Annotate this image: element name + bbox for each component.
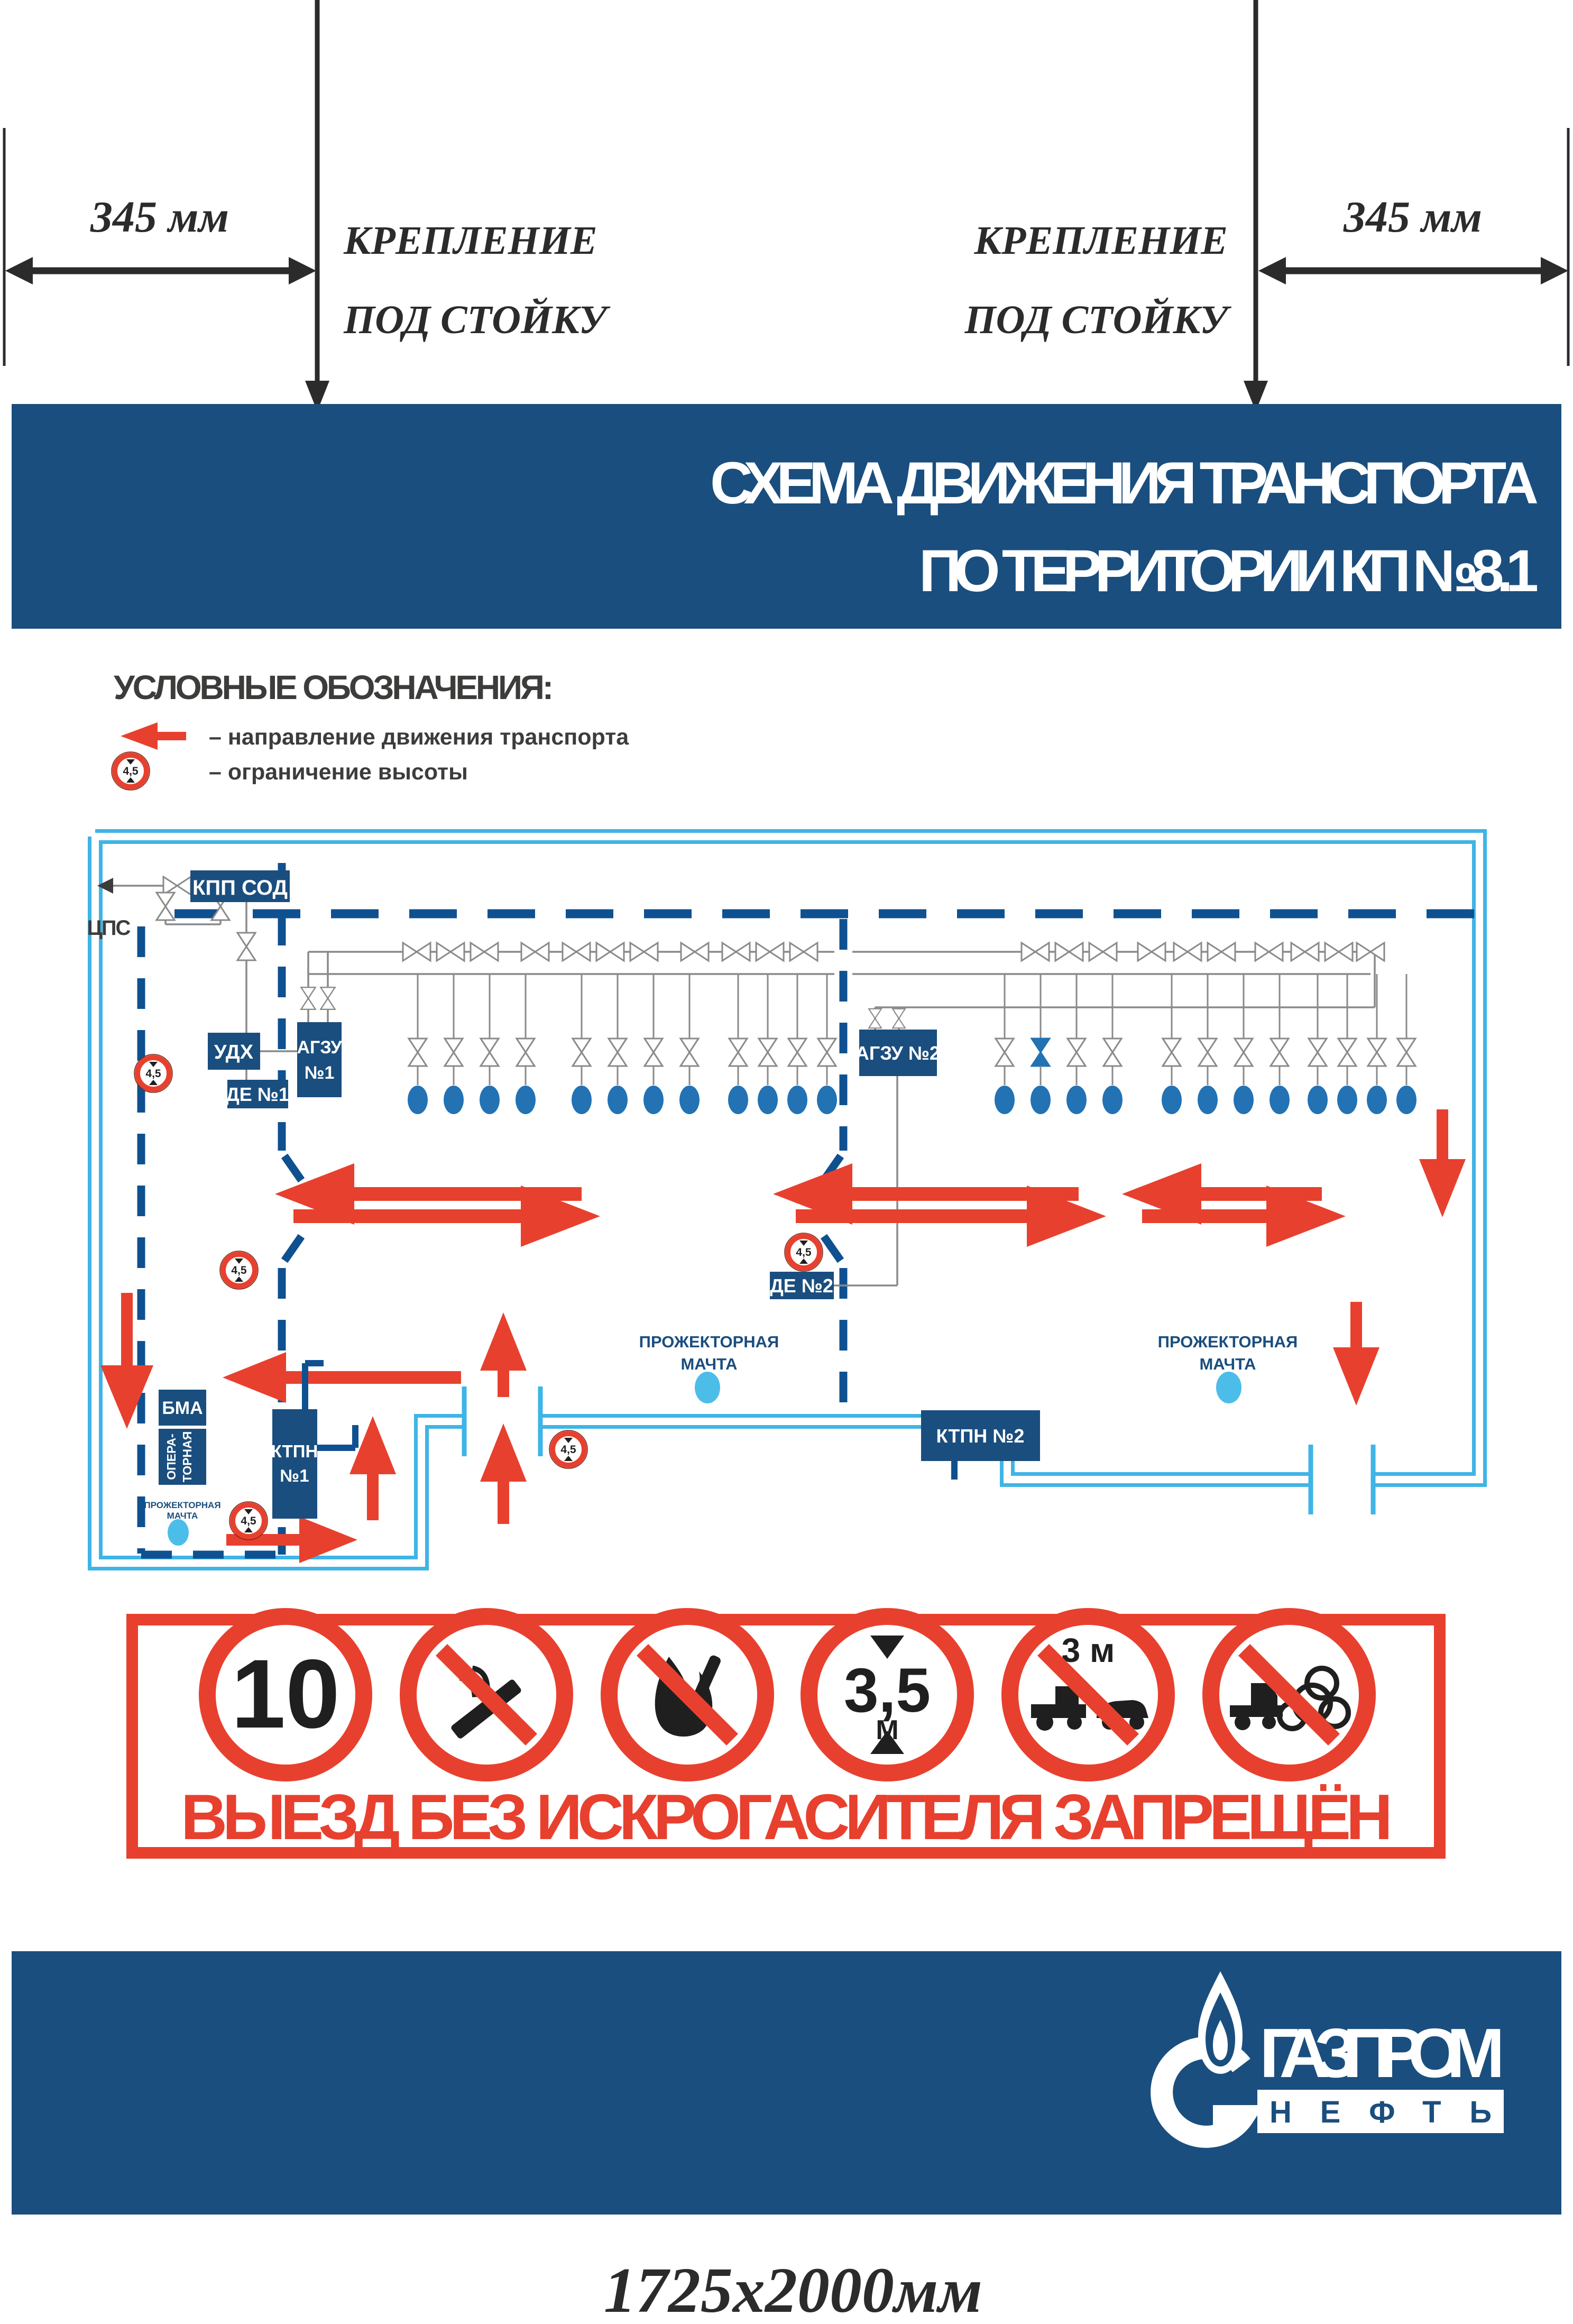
legend-title: УСЛОВНЫЕ ОБОЗНАЧЕНИЯ: [114, 668, 553, 706]
right-dimension-value: 345 мм [1343, 192, 1482, 242]
ktpn2-label: КТПН №2 [936, 1425, 1025, 1447]
mast-label-line2: МАЧТА [167, 1511, 198, 1521]
wellhead-icon [758, 974, 778, 1114]
height-limit-sign-icon [112, 752, 150, 790]
speed-limit-value: 10 [231, 1640, 340, 1749]
operator-room-label-line1: ОПЕРА- [164, 1434, 178, 1480]
height-limit-sign-icon [220, 1251, 258, 1289]
poster-canvas: 4,5 м 345 мм 345 мм КРЕПЛЕНИЕ ПОД СТОЙКУ [0, 0, 1573, 2324]
valve-icon [471, 943, 498, 961]
wellhead-icon [1234, 974, 1254, 1114]
wellhead-icon [1367, 974, 1387, 1114]
no-idling-sign-icon [1211, 1616, 1367, 1773]
valve-icon [756, 943, 784, 961]
road-gate-diagonal [284, 1156, 301, 1180]
speed-limit-sign-icon: 10 [207, 1616, 364, 1773]
valve-icon [1325, 943, 1353, 961]
valve-icon [790, 943, 817, 961]
mast-label-line1: ПРОЖЕКТОРНАЯ [1158, 1333, 1298, 1351]
board-size-note: 1725x2000мм [604, 2255, 982, 2324]
valve-icon [521, 943, 549, 961]
tow-distance-value: 3 м [1062, 1631, 1115, 1669]
mounting-annotation: 345 мм 345 мм КРЕПЛЕНИЕ ПОД СТОЙКУ КРЕПЛ… [4, 0, 1568, 411]
valve-icon [1208, 943, 1235, 961]
mount-label-line1: КРЕПЛЕНИЕ [973, 218, 1228, 263]
de1-label: ДЕ №1 [226, 1083, 289, 1105]
wellhead-icon [1396, 974, 1416, 1114]
valve-icon [1255, 943, 1283, 961]
wellhead-icon [1162, 974, 1182, 1114]
wellhead-icon [572, 974, 592, 1114]
height-limit-sign-icon [229, 1502, 268, 1540]
wellhead-icon [408, 974, 428, 1114]
ktpn1-box [272, 1409, 317, 1519]
mast-label-line1: ПРОЖЕКТОРНАЯ [144, 1500, 220, 1510]
wellhead-icon [1308, 974, 1328, 1114]
legend: УСЛОВНЫЕ ОБОЗНАЧЕНИЯ: – направление движ… [112, 668, 629, 790]
mount-label-line2: ПОД СТОЙКУ [343, 297, 611, 342]
wellhead-icon [480, 974, 500, 1114]
traffic-arrow-down-icon [1419, 1109, 1466, 1217]
valve-icon [1138, 943, 1165, 961]
page-title-line1: СХЕМА ДВИЖЕНИЯ ТРАНСПОРТА [710, 450, 1538, 516]
mount-label-line2: ПОД СТОЙКУ [964, 297, 1231, 342]
height-35-unit: М [876, 1715, 898, 1746]
brand-footer: ГАЗПРОМ НЕФТЬ [12, 1951, 1561, 2215]
site-scheme: ЦПС [87, 837, 1496, 1563]
left-dimension-arrow-icon [5, 257, 316, 284]
bma-label: БМА [162, 1398, 203, 1418]
prohibition-panel: 10 3,5 М [132, 1616, 1440, 1853]
wellhead-icon [444, 974, 464, 1114]
legend-height-label: – ограничение высоты [209, 759, 468, 785]
road-gate-diagonal [824, 1236, 841, 1261]
valve-icon [237, 933, 255, 960]
agzu-risers [301, 987, 905, 1028]
valve-icon [681, 943, 709, 961]
valve-icon [1357, 943, 1384, 961]
wellhead-icon [608, 974, 628, 1114]
ktpn1-label-line1: КТПН [271, 1441, 318, 1461]
height-limit-35-sign-icon: 3,5 М [809, 1616, 965, 1773]
valve-icon [596, 943, 624, 961]
mast-icon [695, 1372, 720, 1403]
wellhead-icon [728, 974, 748, 1114]
mast-label-line2: МАЧТА [1199, 1355, 1256, 1373]
valve-icon [437, 943, 464, 961]
wellhead-icon [679, 974, 700, 1114]
valve-icon [893, 1009, 905, 1028]
wellhead-icon [1337, 974, 1357, 1114]
kpp-sod-label: КПП СОД [192, 876, 288, 899]
valve-icon [157, 893, 174, 920]
right-mount-label: КРЕПЛЕНИЕ ПОД СТОЙКУ [964, 218, 1231, 342]
wellhead-icon [787, 974, 807, 1114]
traffic-arrow-up-icon [480, 1423, 527, 1524]
direction-arrow-icon [121, 722, 186, 750]
valve-icon [563, 943, 590, 961]
height-limit-sign-icon [134, 1054, 172, 1092]
page-title-line2: ПО ТЕРРИТОРИИ КП №8.1 [919, 538, 1538, 604]
agzu1-label-line1: АГЗУ [297, 1037, 343, 1058]
wellhead-icon [643, 974, 664, 1114]
valve-icon [301, 987, 315, 1009]
de2-label: ДЕ №2 [770, 1275, 833, 1297]
cps-label: ЦПС [87, 916, 131, 940]
brand-name: ГАЗПРОМ [1259, 2014, 1504, 2092]
wellhead-closed-icon [1031, 974, 1051, 1114]
traffic-arrow-down-icon [1333, 1302, 1379, 1406]
agzu1-label-line2: №1 [305, 1063, 335, 1083]
mast-label-line1: ПРОЖЕКТОРНАЯ [639, 1333, 779, 1351]
valve-icon [630, 943, 658, 961]
valve-icon [869, 1009, 881, 1028]
spark-arrester-warning: ВЫЕЗД БЕЗ ИСКРОГАСИТЕЛЯ ЗАПРЕЩЁН [181, 1781, 1392, 1853]
wellhead-icon [1102, 974, 1123, 1114]
wellhead-icon [1066, 974, 1087, 1114]
valve-icon [1291, 943, 1319, 961]
mast-icon [1216, 1372, 1241, 1403]
left-mount-label: КРЕПЛЕНИЕ ПОД СТОЙКУ [343, 218, 611, 342]
traffic-arrow-up-icon [480, 1312, 527, 1397]
left-dimension-value: 345 мм [90, 192, 229, 242]
traffic-arrow-down-icon [100, 1293, 153, 1429]
valve-icon [1022, 943, 1049, 961]
wellhead-icon [817, 974, 837, 1114]
wellhead-icon [1198, 974, 1218, 1114]
valve-icon [1055, 943, 1083, 961]
no-open-fire-sign-icon [609, 1616, 766, 1773]
legend-direction-label: – направление движения транспорта [209, 724, 629, 750]
agzu2-label: АГЗУ №2 [856, 1042, 940, 1064]
road-gate-diagonal [284, 1236, 301, 1261]
valve-icon [1174, 943, 1201, 961]
udh-label: УДХ [214, 1041, 254, 1063]
ktpn1-label-line2: №1 [280, 1466, 309, 1485]
valve-icon [320, 987, 335, 1009]
mount-label-line1: КРЕПЛЕНИЕ [343, 218, 597, 263]
height-limit-sign-icon [785, 1233, 823, 1271]
no-smoking-sign-icon [408, 1616, 565, 1773]
valve-icon [1089, 943, 1117, 961]
wellhead-icon [995, 974, 1015, 1114]
header-band: СХЕМА ДВИЖЕНИЯ ТРАНСПОРТА ПО ТЕРРИТОРИИ … [12, 404, 1561, 629]
mast-icon [168, 1519, 189, 1546]
valve-icon [722, 943, 750, 961]
agzu1-box [297, 1022, 342, 1097]
manifold-valves [157, 877, 1384, 961]
operator-room-label-line2: ТОРНАЯ [180, 1431, 194, 1482]
valve-icon [403, 943, 430, 961]
sign-design-proof: 4,5 м 345 мм 345 мм КРЕПЛЕНИЕ ПОД СТОЙКУ [0, 0, 1573, 2324]
right-dimension-arrow-icon [1258, 257, 1568, 284]
traffic-arrow-left-icon [223, 1352, 461, 1403]
wellhead-icon [516, 974, 536, 1114]
wellhead-icon [1270, 974, 1290, 1114]
mast-label-line2: МАЧТА [680, 1355, 737, 1373]
height-limit-sign-icon [549, 1430, 587, 1468]
towing-limit-sign-icon: 3 м [1010, 1616, 1166, 1773]
